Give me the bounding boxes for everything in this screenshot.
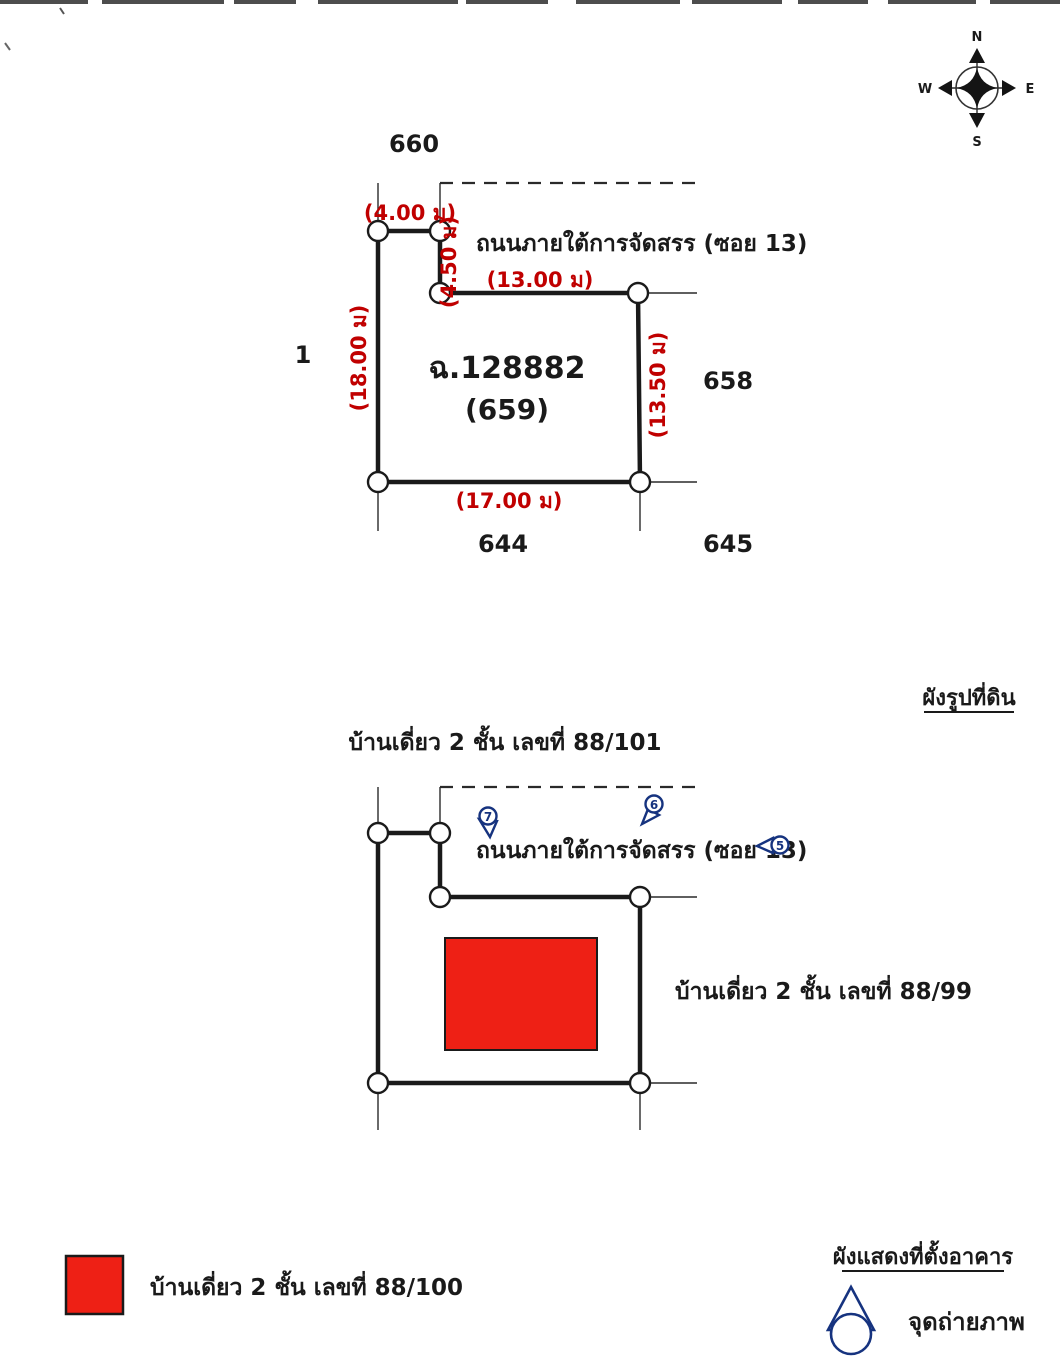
plan1-plot-number: (659) (465, 393, 549, 426)
plan1-neighbor-bottom-left: 644 (478, 530, 528, 558)
plan2-house-right-label: บ้านเดี่ยว 2 ชั้น เลขที่ 88/99 (675, 974, 972, 1005)
photo-marker-5-number: 5 (776, 839, 784, 853)
plan1-deed-number: ฉ.128882 (428, 351, 585, 386)
plan2-vertex (430, 887, 450, 907)
plan2-title: บ้านเดี่ยว 2 ชั้น เลขที่ 88/101 (348, 725, 661, 756)
plan1-caption: ผังรูปที่ดิน (922, 681, 1015, 712)
plan2-vertex (630, 1073, 650, 1093)
compass-east-label: E (1026, 82, 1035, 97)
plan2-building-footprint (445, 938, 597, 1050)
plan2-road-label: ถนนภายใต้การจัดสรร (ซอย 13) (476, 836, 807, 864)
plan2-vertex (430, 823, 450, 843)
plan1-neighbor-top: 660 (389, 130, 439, 158)
legend-building-label: บ้านเดี่ยว 2 ชั้น เลขที่ 88/100 (150, 1270, 463, 1301)
compass-north-label: N (972, 30, 983, 45)
plan1-neighbor-bottom-right: 645 (703, 530, 753, 558)
plan1-road-label: ถนนภายใต้การจัดสรร (ซอย 13) (476, 229, 807, 257)
compass-south-label: S (972, 135, 981, 150)
scan-edge-artifact (0, 2, 1060, 50)
scanned-survey-page: N S W E 660 1 658 644 645 (4.00 ม) (4.50… (0, 0, 1060, 1365)
plan2-vertex (368, 1073, 388, 1093)
photo-marker-7-icon: 7 (479, 808, 497, 838)
plan1-vertex (628, 283, 648, 303)
photo-marker-7-number: 7 (484, 810, 492, 824)
compass-rose-icon: N S W E (918, 30, 1035, 150)
plan1-vertex (630, 472, 650, 492)
legend-building-swatch (66, 1256, 123, 1314)
compass-west-label: W (918, 82, 932, 97)
plan1-neighbor-left: 1 (295, 341, 312, 369)
plan2-vertex (630, 887, 650, 907)
photo-marker-6-number: 6 (650, 798, 658, 812)
plan1-land-diagram: 660 1 658 644 645 (4.00 ม) (4.50 ม) (13.… (295, 130, 1016, 712)
plan1-dim-top-vertical: (4.50 ม) (437, 216, 461, 308)
plan2-vertex (368, 823, 388, 843)
plan2-caption: ผังแสดงที่ตั้งอาคาร (833, 1240, 1013, 1270)
plan1-dim-left: (18.00 ม) (347, 305, 371, 412)
plan1-dim-right: (13.50 ม) (646, 332, 670, 439)
plan1-dim-upper: (13.00 ม) (487, 268, 594, 292)
plan1-vertex (368, 472, 388, 492)
plan1-dim-bottom: (17.00 ม) (456, 489, 563, 513)
plan1-neighbor-right: 658 (703, 367, 753, 395)
legend-photo-point-label: จุดถ่ายภาพ (908, 1308, 1025, 1338)
photo-marker-6-icon: 6 (642, 796, 663, 825)
photo-point-symbol-icon (828, 1287, 874, 1354)
plan2-building-diagram: บ้านเดี่ยว 2 ชั้น เลขที่ 88/101 ถนนภายใต… (348, 725, 1013, 1271)
